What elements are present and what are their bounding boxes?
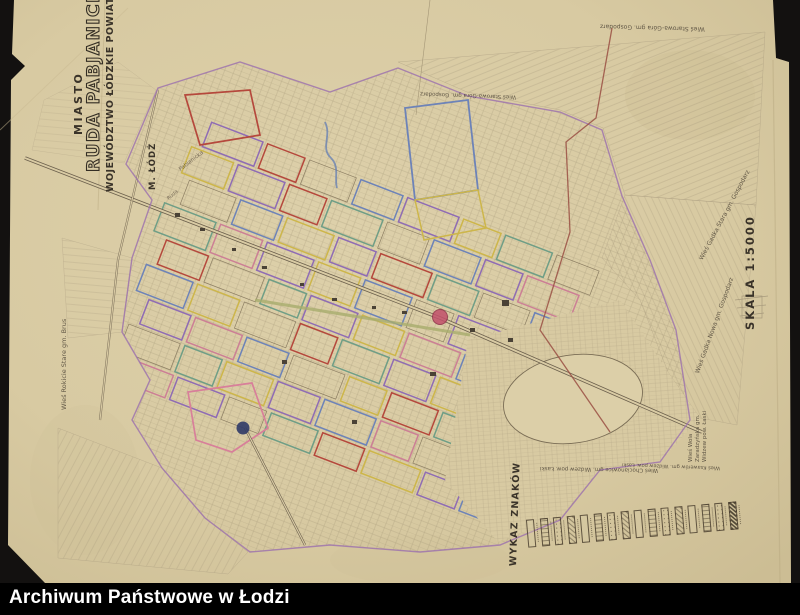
map-title-subtitle: WOJEWÓDZTWO ŁÓDZKIE POWIAT ŁÓDZKI (105, 0, 116, 192)
scale-label: SKALA 1:5000 (743, 215, 757, 330)
adjacent-city-label: M. ŁÓDŹ (148, 143, 158, 190)
archive-name: Archiwum Państwowe w Łodzi (9, 587, 290, 609)
legend-swatch (701, 504, 711, 533)
legend-swatch (633, 510, 643, 539)
edge-label-rokicie-stare: Wieś Rokicie Stare gm. Brus (60, 319, 68, 410)
legend-swatch (580, 514, 590, 543)
map-title-name: RUDA PABJANICKA (84, 0, 104, 172)
legend-swatch (607, 512, 617, 541)
legend-swatch (620, 511, 630, 540)
edge-label-wola-zaradzynska: Wieś Wola Zaradzyńska gm. Widzew pow. Ła… (688, 406, 709, 462)
legend-swatch (539, 518, 549, 547)
legend-swatch (660, 507, 670, 536)
red-dot-marker (433, 310, 448, 325)
navy-dot-marker (237, 422, 250, 435)
legend-swatch (714, 503, 724, 532)
legend-swatch (593, 513, 603, 542)
legend-swatch (566, 516, 576, 545)
scanned-map-page: MIASTO RUDA PABJANICKA WOJEWÓDZTWO ŁÓDZK… (0, 0, 800, 615)
legend-swatch (526, 519, 536, 548)
legend-swatch (647, 508, 657, 537)
archive-footer-bar: Archiwum Państwowe w Łodzi (0, 583, 800, 615)
legend-swatch (553, 517, 563, 546)
legend-swatch (687, 505, 697, 534)
legend-swatch (674, 506, 684, 535)
